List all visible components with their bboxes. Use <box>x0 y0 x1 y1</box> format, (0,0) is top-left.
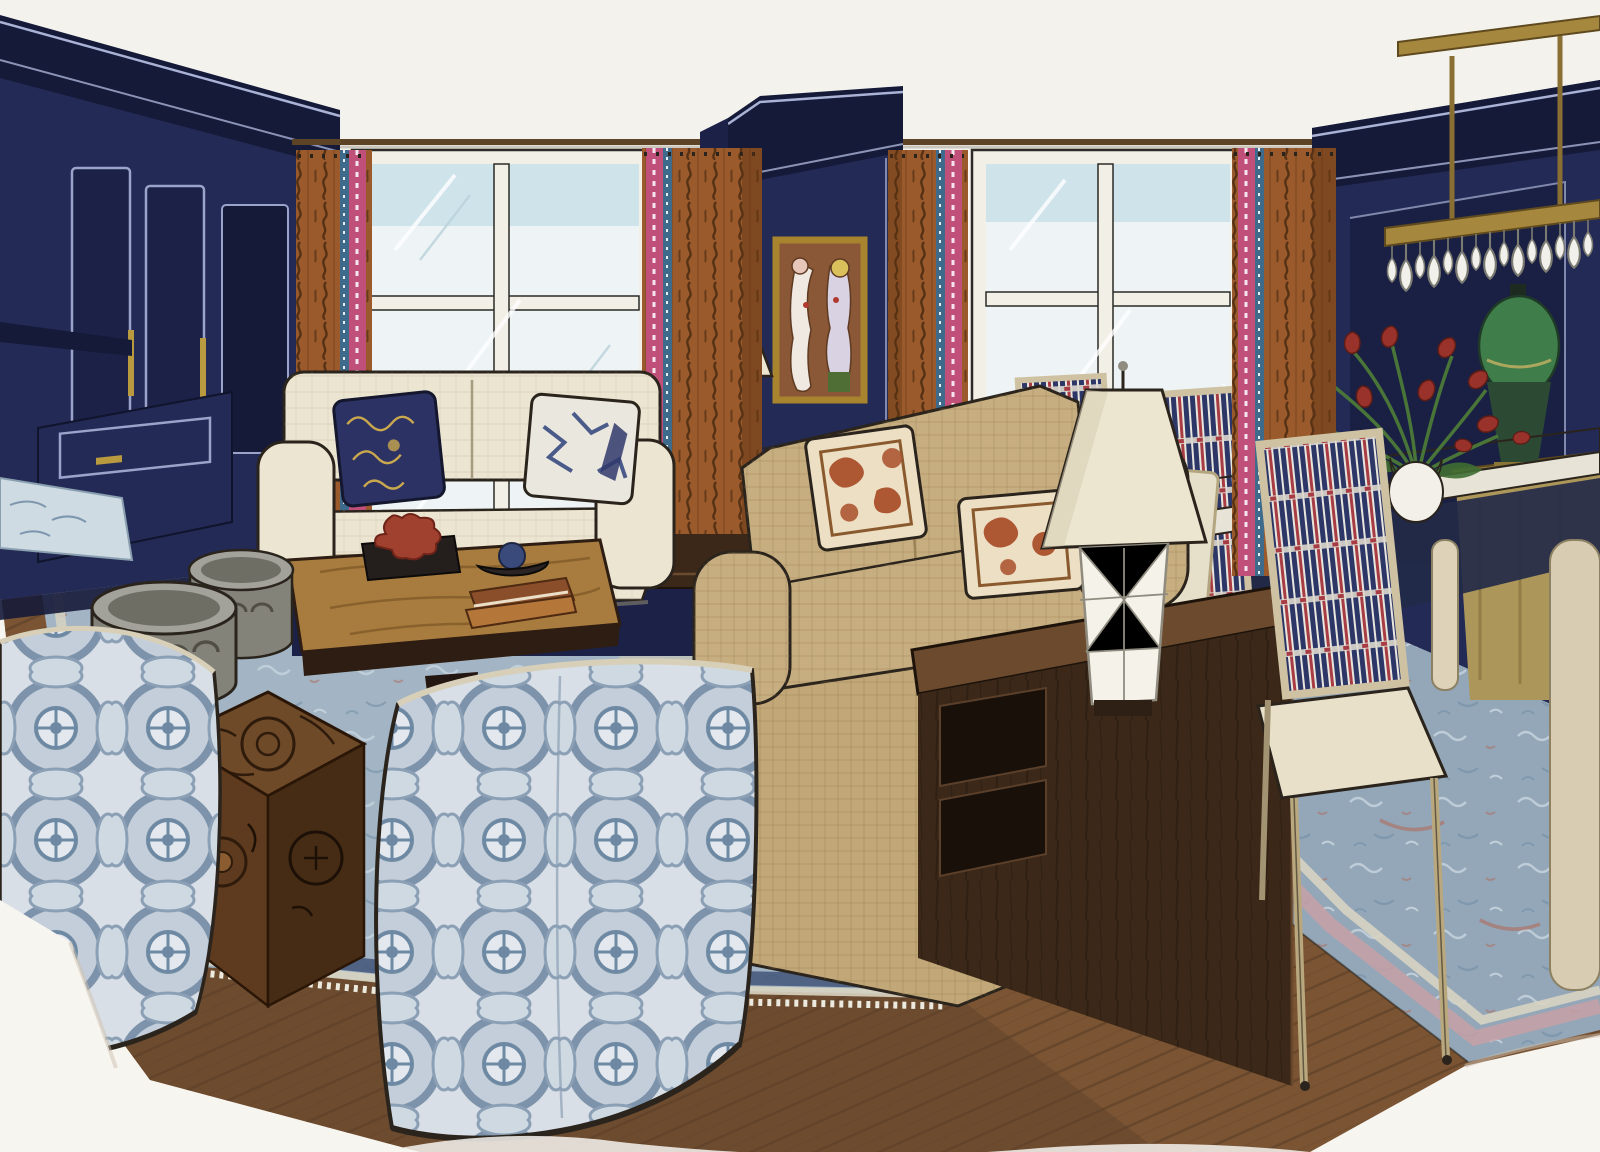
window-mullion <box>494 164 509 548</box>
art-green-patch <box>828 372 850 392</box>
art-figure-right <box>826 266 851 382</box>
barrel-chair-center <box>376 661 756 1138</box>
chair-back <box>1260 432 1406 695</box>
pillow-rust-left <box>805 425 928 551</box>
framed-artwork <box>776 240 864 400</box>
brass-pull <box>200 338 206 404</box>
pillow-navy <box>333 391 446 507</box>
table-pedestal <box>1550 540 1600 990</box>
cabinet-door <box>72 168 130 428</box>
interior-rendering <box>0 0 1600 1152</box>
scene-canvas <box>0 0 1600 1152</box>
lamp-finial <box>1118 361 1128 371</box>
pillow-white-blue <box>524 393 640 504</box>
lamp-base <box>1094 700 1152 716</box>
table-leg <box>1432 540 1458 690</box>
